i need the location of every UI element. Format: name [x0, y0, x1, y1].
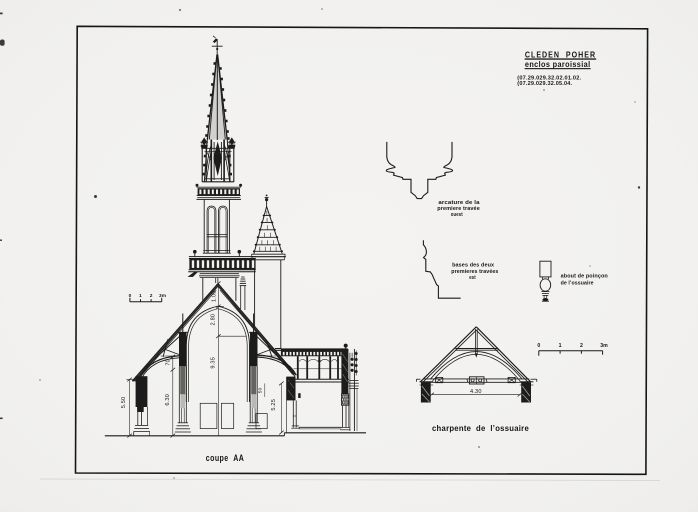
- svg-text:3m: 3m: [159, 293, 166, 299]
- svg-text:2: 2: [150, 293, 153, 299]
- svg-text:50: 50: [257, 387, 263, 393]
- svg-text:2.80: 2.80: [211, 314, 217, 326]
- svg-text:5.25: 5.25: [271, 399, 277, 411]
- svg-text:3m: 3m: [600, 343, 608, 349]
- svg-text:1: 1: [559, 343, 562, 349]
- svg-text:4.30: 4.30: [470, 389, 482, 395]
- svg-text:2: 2: [580, 343, 583, 349]
- svg-text:ouest: ouest: [451, 212, 463, 218]
- svg-text:1.05: 1.05: [211, 291, 217, 302]
- svg-text:0: 0: [537, 343, 540, 349]
- svg-text:arcature de la: arcature de la: [438, 200, 479, 206]
- svg-text:70: 70: [165, 359, 171, 365]
- svg-text:5.50: 5.50: [121, 397, 127, 409]
- svg-text:charpente de l’ossuaire: charpente de l’ossuaire: [432, 424, 529, 433]
- svg-text:6.30: 6.30: [165, 394, 171, 406]
- svg-text:est: est: [469, 275, 476, 281]
- svg-text:bases des deux: bases des deux: [452, 263, 494, 269]
- svg-text:enclos paroissial: enclos paroissial: [525, 60, 591, 69]
- svg-text:9.35: 9.35: [211, 357, 217, 369]
- svg-text:de l’ossuaire: de l’ossuaire: [561, 280, 594, 286]
- svg-text:1: 1: [139, 293, 142, 299]
- svg-text:(07.29.029.32.05.04.: (07.29.029.32.05.04.: [517, 81, 572, 87]
- svg-text:coupe AA: coupe AA: [206, 453, 245, 463]
- svg-text:0: 0: [129, 293, 132, 299]
- svg-text:about de poinçon: about de poinçon: [561, 273, 608, 279]
- svg-text:CLEDEN POHER: CLEDEN POHER: [525, 49, 596, 59]
